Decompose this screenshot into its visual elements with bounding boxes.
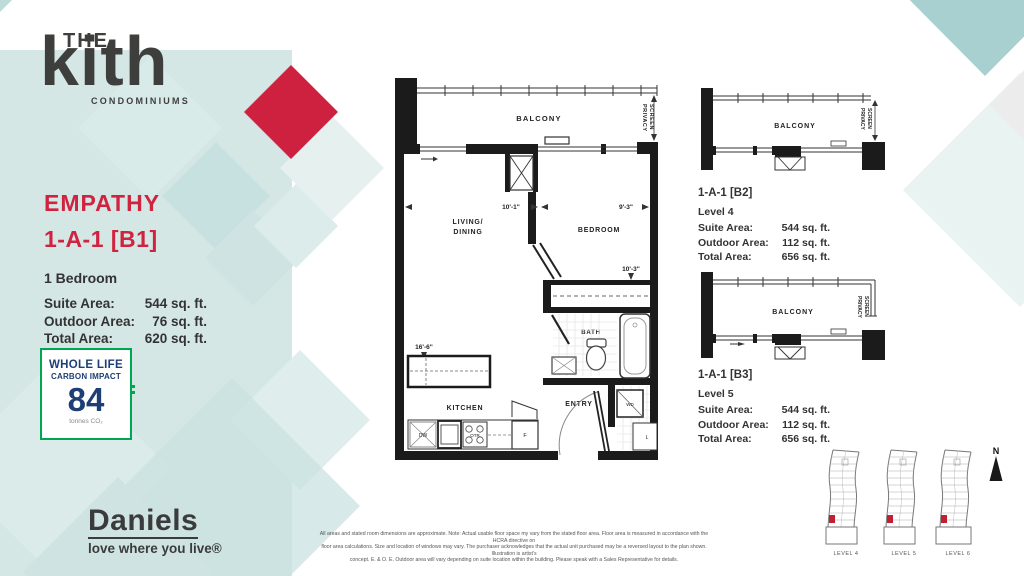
north-arrow-icon — [988, 456, 1004, 482]
outdoor-area-value: 76 sq. ft. — [152, 313, 207, 331]
b2-balcony-label: BALCONY — [774, 123, 816, 130]
carbon-value: 84 — [42, 383, 130, 416]
svg-text:DINING: DINING — [453, 229, 482, 236]
keyplan-label-level5: LEVEL 5 — [876, 551, 932, 557]
b2-suite-value: 544 sq. ft. — [782, 221, 830, 236]
floorplan-sheet: kith THE CONDOMINIUMS EMPATHY 1-A-1 [B1]… — [0, 0, 1024, 576]
carbon-title-1: WHOLE LIFE — [42, 359, 130, 371]
svg-text:KITCHEN: KITCHEN — [447, 405, 484, 412]
svg-text:DW: DW — [419, 433, 428, 439]
privacy-screen-label-1: PRIVACY — [641, 104, 647, 132]
b3-floorplan: BALCONY PRIVACY SCREEN — [698, 268, 888, 360]
keyplan-level6 — [930, 447, 986, 547]
unit-name: EMPATHY — [44, 190, 214, 217]
b2-code: 1-A-1 [B2] — [698, 187, 830, 199]
b2-privacy-1: PRIVACY — [859, 108, 865, 131]
svg-text:LIVING/: LIVING/ — [453, 219, 484, 226]
privacy-screen-label-2: SCREEN — [648, 104, 654, 130]
b2-suite-row: Suite Area: 544 sq. ft. — [698, 221, 830, 236]
b2-total-label: Total Area: — [698, 250, 752, 265]
wd-label: WD — [626, 402, 634, 407]
svg-text:9'-3": 9'-3" — [619, 204, 633, 211]
toilet — [587, 339, 607, 370]
main-floorplan: PRIVACY SCREEN BALCONY — [393, 68, 675, 468]
carbon-title-2: CARBON IMPACT — [42, 372, 130, 381]
shaft — [510, 156, 533, 190]
bath-vanity — [552, 357, 576, 374]
b3-suite-label: Suite Area: — [698, 403, 753, 418]
b2-shaft — [775, 157, 805, 170]
disclaimer: All areas and stated room dimensions are… — [318, 531, 710, 564]
b3-privacy-1: PRIVACY — [856, 296, 862, 319]
linen-label: L — [646, 435, 649, 441]
disclaimer-line-3: concept. E. & O. E. Outdoor area will va… — [318, 557, 710, 564]
kitchen-island — [408, 356, 490, 387]
b3-shaft — [775, 347, 805, 359]
b2-railing — [713, 93, 871, 103]
b3-outdoor-value: 112 sq. ft. — [782, 418, 830, 433]
b2-info: 1-A-1 [B2] Level 4 Suite Area: 544 sq. f… — [698, 187, 830, 265]
unit-marker — [829, 515, 835, 523]
b2-level: Level 4 — [698, 206, 830, 218]
keyplan-label-level6: LEVEL 6 — [930, 551, 986, 557]
svg-text:10'-1": 10'-1" — [502, 204, 520, 211]
balcony-railing — [417, 85, 657, 96]
b2-total-row: Total Area: 656 sq. ft. — [698, 250, 830, 265]
b3-total-row: Total Area: 656 sq. ft. — [698, 432, 830, 447]
logo-the-text: THE — [63, 30, 109, 53]
unit-area-table: Suite Area: 544 sq. ft. Outdoor Area: 76… — [44, 295, 207, 348]
carbon-unit: tonnes CO₂ — [42, 418, 130, 425]
b3-balcony-label: BALCONY — [772, 309, 814, 316]
b3-privacy-2: SCREEN — [863, 296, 869, 317]
outdoor-area-label: Outdoor Area: — [44, 313, 135, 331]
carbon-impact-badge: WHOLE LIFE CARBON IMPACT 84 tonnes CO₂ — [40, 348, 132, 440]
keyplan-level4 — [818, 447, 874, 547]
daniels-tagline: love where you live® — [88, 541, 222, 556]
kith-logo: kith THE CONDOMINIUMS — [40, 22, 210, 112]
b3-info: 1-A-1 [B3] Level 5 Suite Area: 544 sq. f… — [698, 369, 830, 447]
suite-area-value: 544 sq. ft. — [145, 295, 207, 313]
b2-suite-label: Suite Area: — [698, 221, 753, 236]
total-area-row: Total Area: 620 sq. ft. — [44, 330, 207, 348]
b2-outdoor-row: Outdoor Area: 112 sq. ft. — [698, 236, 830, 251]
daniels-name: Daniels — [88, 506, 198, 539]
b3-suite-value: 544 sq. ft. — [782, 403, 830, 418]
svg-text:BEDROOM: BEDROOM — [578, 227, 620, 234]
b3-total-value: 656 sq. ft. — [782, 432, 830, 447]
b3-level: Level 5 — [698, 388, 830, 400]
b3-outdoor-row: Outdoor Area: 112 sq. ft. — [698, 418, 830, 433]
bathtub — [620, 314, 650, 378]
b3-suite-row: Suite Area: 544 sq. ft. — [698, 403, 830, 418]
b2-privacy-2: SCREEN — [866, 108, 872, 129]
disclaimer-line-1: All areas and stated room dimensions are… — [318, 531, 710, 544]
daniels-logo: Daniels love where you live® — [88, 506, 222, 556]
unit-marker — [887, 515, 893, 523]
unit-code: 1-A-1 [B1] — [44, 226, 214, 253]
slide-arrow — [433, 157, 438, 162]
svg-text:16'-6": 16'-6" — [415, 344, 433, 351]
bath-door — [552, 315, 569, 344]
b2-outdoor-label: Outdoor Area: — [698, 236, 769, 251]
b3-outdoor-label: Outdoor Area: — [698, 418, 769, 433]
suite-area-row: Suite Area: 544 sq. ft. — [44, 295, 207, 313]
keyplan-level5 — [876, 447, 932, 547]
total-area-value: 620 sq. ft. — [145, 330, 207, 348]
svg-text:10'-3": 10'-3" — [622, 266, 640, 273]
logo-condominiums-text: CONDOMINIUMS — [91, 96, 190, 106]
unit-type: 1 Bedroom — [44, 270, 214, 286]
b3-total-label: Total Area: — [698, 432, 752, 447]
compass-n-label: N — [988, 446, 1004, 456]
b2-total-value: 656 sq. ft. — [782, 250, 830, 265]
carbon-dots — [132, 385, 135, 397]
north-compass: N — [988, 446, 1004, 487]
svg-text:OTR: OTR — [470, 433, 480, 438]
keyplan-label-level4: LEVEL 4 — [818, 551, 874, 557]
total-area-label: Total Area: — [44, 330, 113, 348]
unit-info: EMPATHY 1-A-1 [B1] 1 Bedroom Suite Area:… — [44, 190, 214, 348]
b3-code: 1-A-1 [B3] — [698, 369, 830, 381]
unit-marker — [941, 515, 947, 523]
b2-outdoor-value: 112 sq. ft. — [782, 236, 830, 251]
bedroom-door — [533, 243, 561, 279]
disclaimer-line-2: floor area calculations. Size and locati… — [318, 544, 710, 557]
suite-area-label: Suite Area: — [44, 295, 115, 313]
balcony-label: BALCONY — [516, 114, 561, 123]
b2-floorplan: BALCONY PRIVACY SCREEN — [698, 84, 888, 172]
outdoor-area-row: Outdoor Area: 76 sq. ft. — [44, 313, 207, 331]
